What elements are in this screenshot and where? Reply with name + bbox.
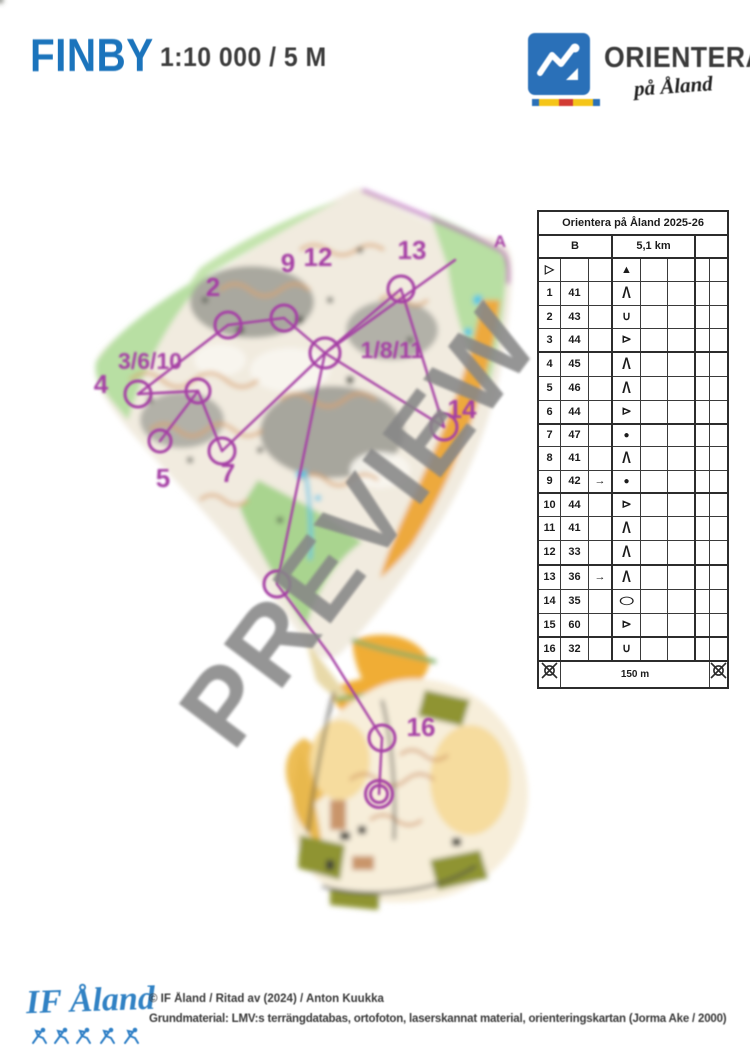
column-c-cell: [589, 541, 613, 566]
control-code-cell: 46: [561, 377, 589, 401]
cliff-symbol-icon: Λ: [622, 444, 631, 470]
column-c-cell: [589, 493, 613, 517]
column-g-cell: [695, 329, 710, 353]
start-triangle-icon: ▷: [538, 258, 561, 282]
spur-symbol-icon: ⊳: [621, 494, 631, 515]
card-header-row: B 5,1 km: [538, 235, 728, 258]
column-h-cell: [710, 614, 729, 638]
control-row: 1632∪: [538, 637, 728, 661]
column-g-cell: [695, 614, 710, 638]
control-code-cell: 43: [561, 306, 589, 329]
column-g-cell: [695, 565, 710, 590]
feature-symbol-cell: Λ: [612, 517, 641, 541]
map-terrain: [0, 0, 528, 910]
control-code-cell: 35: [561, 590, 589, 614]
control-number-cell: 8: [538, 447, 561, 471]
finish-row: 150 m: [538, 661, 728, 688]
column-f-cell: [668, 541, 696, 566]
control-number-cell: 1: [538, 282, 561, 306]
aland-flag-stripe: [532, 99, 600, 106]
column-g-cell: [695, 424, 710, 447]
control-number-cell: 10: [538, 493, 561, 517]
control-number-cell: 3: [538, 329, 561, 353]
orientera-logo-text: ORIENTERA: [604, 42, 750, 75]
column-f-cell: [668, 306, 696, 329]
column-h-cell: [710, 471, 729, 494]
control-number-cell: 4: [538, 352, 561, 377]
control-number-cell: 12: [538, 541, 561, 566]
course-climb: [695, 235, 728, 258]
control-row: 1141Λ: [538, 517, 728, 541]
column-h-cell: [710, 306, 729, 329]
column-e-cell: [641, 352, 668, 377]
control-row: 546Λ: [538, 377, 728, 401]
feature-symbol-cell: Λ: [612, 447, 641, 471]
column-f-cell: [668, 329, 696, 353]
column-f-cell: [668, 565, 696, 590]
cliff-symbol-icon: Λ: [622, 538, 631, 564]
column-h-cell: [710, 377, 729, 401]
column-e-cell: [641, 517, 668, 541]
orientera-logo: ORIENTERA på Åland: [528, 30, 728, 108]
depression-symbol-icon: ◯: [619, 594, 634, 607]
spur-symbol-icon: ⊳: [621, 614, 631, 635]
control-code-cell: 41: [561, 282, 589, 306]
control-number-cell: 15: [538, 614, 561, 638]
control-code-cell: 44: [561, 493, 589, 517]
cliff-symbol-icon: Λ: [622, 279, 631, 305]
control-row: 1044⊳: [538, 493, 728, 517]
column-h-cell: [710, 637, 729, 661]
finish-marker-icon: [538, 661, 561, 688]
column-h-cell: [710, 590, 729, 614]
column-c-cell: [589, 282, 613, 306]
column-c-cell: [589, 306, 613, 329]
control-code-cell: 42: [561, 471, 589, 494]
control-number-cell: 7: [538, 424, 561, 447]
column-f-cell: [668, 517, 696, 541]
column-f-cell: [668, 282, 696, 306]
control-row: 1336→Λ: [538, 565, 728, 590]
course-length: 5,1 km: [612, 235, 695, 258]
re-entrant-symbol-icon: ∪: [622, 306, 631, 327]
card-title: Orientera på Åland 2025-26: [538, 211, 728, 235]
cliff-symbol-icon: Λ: [622, 350, 631, 376]
control-code-cell: 47: [561, 424, 589, 447]
column-f-cell: [668, 401, 696, 425]
control-number-cell: 6: [538, 401, 561, 425]
column-e-cell: [641, 329, 668, 353]
spur-symbol-icon: ⊳: [621, 401, 631, 422]
control-code-cell: 44: [561, 329, 589, 353]
spur-symbol-icon: ⊳: [621, 329, 631, 350]
control-row: 243∪: [538, 306, 728, 329]
column-h-cell: [710, 565, 729, 590]
column-e-cell: [641, 282, 668, 306]
column-e-cell: [641, 377, 668, 401]
feature-symbol-cell: Λ: [612, 565, 641, 590]
column-g-cell: [695, 401, 710, 425]
column-f-cell: [668, 377, 696, 401]
control-number-cell: 5: [538, 377, 561, 401]
feature-symbol-cell: ●: [612, 424, 641, 447]
feature-symbol-cell: Λ: [612, 352, 641, 377]
column-f-cell: [668, 493, 696, 517]
column-e-cell: [641, 637, 668, 661]
feature-symbol-cell: ◯: [612, 590, 641, 614]
column-h-cell: [710, 493, 729, 517]
control-row: 344⊳: [538, 329, 728, 353]
control-number-cell: 2: [538, 306, 561, 329]
column-e-cell: [641, 493, 668, 517]
control-row: 445Λ: [538, 352, 728, 377]
control-code-cell: 32: [561, 637, 589, 661]
column-h-cell: [710, 517, 729, 541]
control-number-label: 12: [304, 242, 333, 272]
control-row: 942→●: [538, 471, 728, 494]
column-e-cell: [641, 447, 668, 471]
control-row: 747●: [538, 424, 728, 447]
column-c-cell: [589, 377, 613, 401]
control-code-cell: 45: [561, 352, 589, 377]
column-g-cell: [695, 282, 710, 306]
knoll-symbol-icon: ●: [623, 425, 629, 446]
control-number-label: 16: [407, 712, 436, 742]
control-number-label: 2: [206, 272, 220, 302]
control-code-cell: 36: [561, 565, 589, 590]
column-f-cell: [668, 637, 696, 661]
column-g-cell: [695, 306, 710, 329]
column-e-cell: [641, 424, 668, 447]
column-e-cell: [641, 590, 668, 614]
control-row: 1233Λ: [538, 541, 728, 566]
control-number-label: 3/6/10: [118, 348, 182, 374]
column-c-cell: [589, 637, 613, 661]
column-g-cell: [695, 541, 710, 566]
control-row: 1560⊳: [538, 614, 728, 638]
finish-distance-cell: 150 m: [561, 661, 710, 688]
column-g-cell: [695, 377, 710, 401]
control-number-cell: 13: [538, 565, 561, 590]
map-preview-page: 291213A1/8/113/6/104571416 FINBY 1:10 00…: [0, 0, 750, 1061]
column-e-cell: [641, 614, 668, 638]
column-h-cell: [710, 282, 729, 306]
column-c-cell: [589, 329, 613, 353]
finish-marker-icon: [710, 661, 729, 688]
control-number-label: 5: [156, 463, 170, 493]
control-number-cell: 11: [538, 517, 561, 541]
feature-symbol-cell: ●: [612, 471, 641, 494]
feature-symbol-cell: ⊳: [612, 493, 641, 517]
column-c-cell: →: [589, 565, 613, 590]
card-title-row: Orientera på Åland 2025-26: [538, 211, 728, 235]
control-number-cell: 14: [538, 590, 561, 614]
column-c-cell: [589, 447, 613, 471]
orientera-logo-icon: [528, 33, 590, 95]
control-number-cell: 16: [538, 637, 561, 661]
column-h-cell: [710, 329, 729, 353]
column-f-cell: [668, 352, 696, 377]
control-number-label: 14: [448, 394, 477, 424]
column-h-cell: [710, 447, 729, 471]
start-row: ▷ ▲: [538, 258, 728, 282]
column-g-cell: [695, 471, 710, 494]
control-row: 644⊳: [538, 401, 728, 425]
start-feature-boulder-icon: ▲: [612, 258, 641, 282]
feature-symbol-cell: Λ: [612, 541, 641, 566]
control-code-cell: 41: [561, 447, 589, 471]
column-g-cell: [695, 447, 710, 471]
column-c-cell: [589, 424, 613, 447]
column-h-cell: [710, 541, 729, 566]
feature-symbol-cell: ∪: [612, 637, 641, 661]
control-number-label: 7: [221, 458, 235, 488]
control-row: 1435◯: [538, 590, 728, 614]
column-e-cell: [641, 565, 668, 590]
column-g-cell: [695, 637, 710, 661]
cliff-symbol-icon: Λ: [622, 514, 631, 540]
feature-symbol-cell: ⊳: [612, 401, 641, 425]
re-entrant-symbol-icon: ∪: [622, 638, 631, 659]
column-g-cell: [695, 493, 710, 517]
map-scale: 1:10 000 / 5 M: [160, 42, 327, 73]
control-number-label: A: [494, 232, 506, 251]
control-description-card: Orientera på Åland 2025-26 B 5,1 km ▷ ▲: [537, 210, 729, 689]
column-c-cell: [589, 352, 613, 377]
column-f-cell: [668, 614, 696, 638]
column-g-cell: [695, 517, 710, 541]
feature-symbol-cell: ⊳: [612, 329, 641, 353]
column-e-cell: [641, 541, 668, 566]
column-g-cell: [695, 590, 710, 614]
feature-symbol-cell: ⊳: [612, 614, 641, 638]
feature-symbol-cell: Λ: [612, 282, 641, 306]
control-number-label: 4: [94, 369, 109, 399]
control-row: 141Λ: [538, 282, 728, 306]
feature-symbol-cell: ∪: [612, 306, 641, 329]
finish-distance: 150 m: [621, 664, 649, 685]
column-f-cell: [668, 447, 696, 471]
column-f-cell: [668, 471, 696, 494]
map-title: FINBY: [30, 28, 154, 82]
course-name: B: [538, 235, 612, 258]
column-h-cell: [710, 352, 729, 377]
column-g-cell: [695, 352, 710, 377]
column-f-cell: [668, 424, 696, 447]
column-e-cell: [641, 471, 668, 494]
control-number-label: 13: [398, 235, 427, 265]
column-c-cell: [589, 517, 613, 541]
source-material-line: Grundmaterial: LMV:s terrängdatabas, ort…: [149, 1013, 726, 1025]
control-number-label: 1/8/11: [361, 337, 424, 363]
runner-figures-icon: [30, 1026, 150, 1051]
control-row: 841Λ: [538, 447, 728, 471]
control-code-cell: 60: [561, 614, 589, 638]
column-c-cell: [589, 590, 613, 614]
knoll-symbol-icon: ●: [623, 471, 629, 492]
column-h-cell: [710, 401, 729, 425]
cliff-symbol-icon: Λ: [622, 374, 631, 400]
feature-symbol-cell: Λ: [612, 377, 641, 401]
column-f-cell: [668, 590, 696, 614]
column-e-cell: [641, 306, 668, 329]
column-e-cell: [641, 401, 668, 425]
column-h-cell: [710, 424, 729, 447]
control-code-cell: 33: [561, 541, 589, 566]
control-code-cell: 44: [561, 401, 589, 425]
column-c-cell: [589, 614, 613, 638]
control-number-cell: 9: [538, 471, 561, 494]
column-c-cell: →: [589, 471, 613, 494]
copyright-line: © IF Åland / Ritad av (2024) / Anton Kuu…: [149, 993, 384, 1005]
orientera-logo-tagline: på Åland: [633, 71, 713, 101]
control-number-label: 9: [281, 248, 295, 278]
control-code-cell: 41: [561, 517, 589, 541]
column-c-cell: [589, 401, 613, 425]
if-aland-logo-text: IF Åland: [25, 980, 155, 1022]
cliff-symbol-icon: Λ: [622, 563, 631, 589]
